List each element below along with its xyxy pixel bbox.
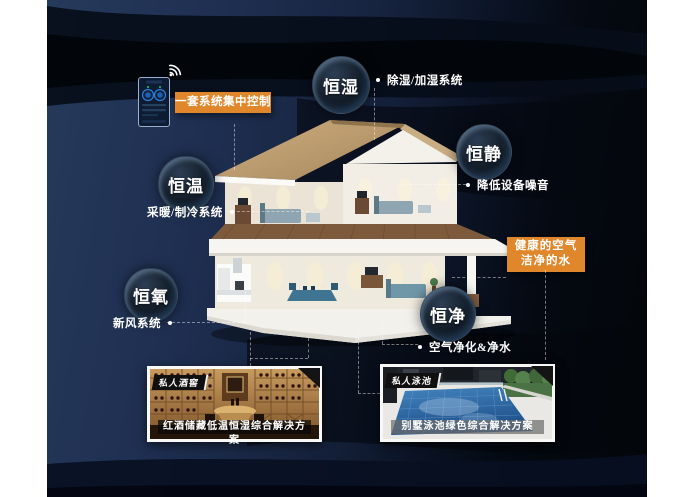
wine-cellar-card: 私人酒窖 红酒储藏低温恒湿综合解决方案 — [147, 366, 322, 442]
note-air-water-purification: 空气净化&净水 — [418, 339, 511, 355]
note-text: 采暖/制冷系统 — [147, 204, 223, 220]
scene-background: 一套系统集中控制 健康的空气 洁净的水 恒湿 恒静 恒温 恒氧 恒净 除湿/加湿… — [47, 0, 647, 497]
wine-cellar-tag: 私人酒窖 — [152, 375, 209, 390]
bubble-constant-clean: 恒净 — [420, 286, 476, 342]
connector-line — [250, 358, 308, 359]
note-dot — [466, 183, 470, 187]
bubble-constant-humidity: 恒湿 — [312, 56, 370, 114]
corner-ribbon — [298, 368, 320, 388]
pool-caption: 别墅泳池绿色综合解决方案 — [391, 420, 544, 434]
note-text: 空气净化&净水 — [429, 339, 511, 355]
clean-water-line: 洁净的水 — [507, 254, 585, 269]
connector-line — [358, 393, 380, 394]
poster-canvas: 一套系统集中控制 健康的空气 洁净的水 恒湿 恒静 恒温 恒氧 恒净 除湿/加湿… — [0, 0, 700, 497]
note-dot — [376, 78, 380, 82]
connector-line — [245, 292, 246, 322]
connector-line — [250, 332, 251, 366]
corner-ribbon — [531, 366, 553, 386]
note-dehumidify-system: 除湿/加湿系统 — [376, 72, 463, 88]
note-fresh-air: 新风系统 — [113, 315, 172, 331]
pool-card: 私人泳池 别墅泳池绿色综合解决方案 — [380, 364, 555, 442]
connector-line — [452, 277, 506, 278]
pool-tag: 私人泳池 — [385, 373, 442, 388]
note-dot — [418, 345, 422, 349]
note-text: 除湿/加湿系统 — [387, 72, 463, 88]
connector-line — [404, 184, 466, 185]
smart-control-panel — [138, 77, 170, 127]
note-text: 降低设备噪音 — [477, 177, 549, 193]
connector-line — [227, 211, 309, 212]
connector-line — [382, 344, 418, 345]
healthy-air-water-callout: 健康的空气 洁净的水 — [507, 237, 585, 272]
note-noise-reduction: 降低设备噪音 — [466, 177, 549, 193]
house-mid-slab — [209, 239, 509, 256]
connector-line — [167, 322, 245, 323]
healthy-air-line: 健康的空气 — [507, 239, 585, 254]
connector-line — [234, 124, 235, 170]
connector-line — [374, 88, 375, 140]
note-heating-cooling: 采暖/制冷系统 — [147, 204, 234, 220]
bubble-constant-oxygen: 恒氧 — [124, 268, 178, 322]
connector-line — [308, 338, 309, 358]
bubble-constant-quiet: 恒静 — [456, 124, 512, 180]
note-text: 新风系统 — [113, 315, 161, 331]
connector-line — [358, 332, 359, 393]
central-control-callout: 一套系统集中控制 — [175, 92, 271, 113]
connector-line — [545, 270, 546, 360]
connector-line — [382, 322, 383, 344]
wine-cellar-caption: 红酒储藏低温恒湿综合解决方案 — [158, 420, 311, 434]
